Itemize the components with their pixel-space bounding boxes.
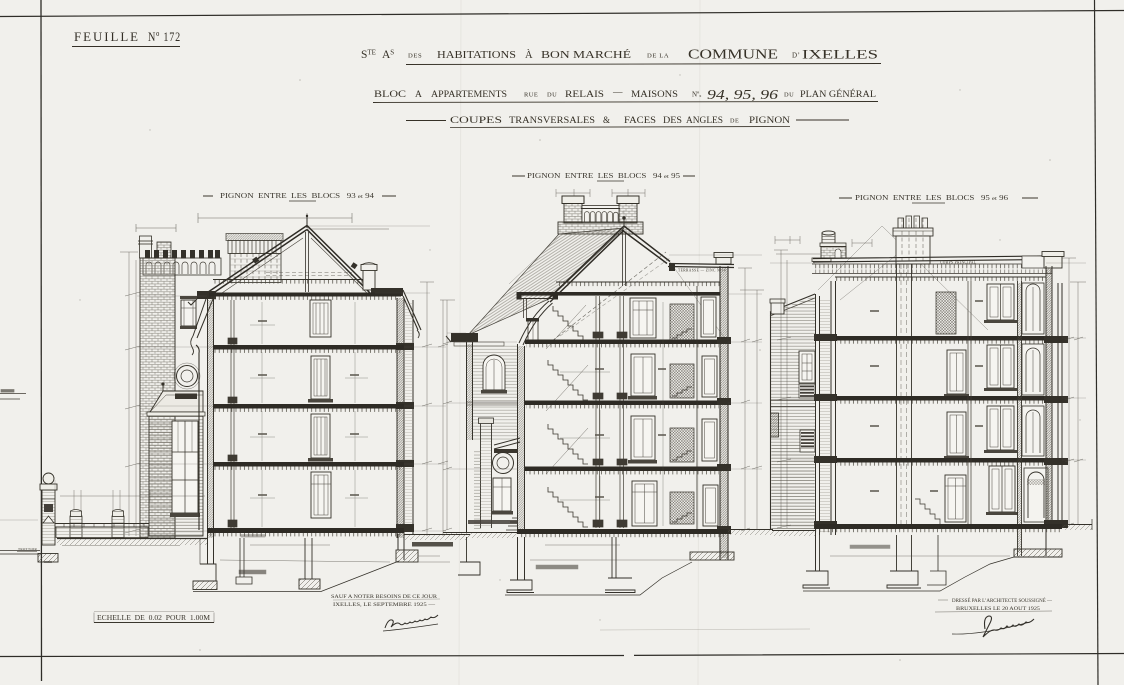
- svg-text:ANGLES: ANGLES: [686, 115, 723, 125]
- svg-text:RUE: RUE: [524, 92, 538, 99]
- svg-text:DE LA: DE LA: [647, 53, 669, 60]
- svg-text:PIGNON: PIGNON: [749, 115, 791, 125]
- svg-text:PLAN GÉNÉRAL: PLAN GÉNÉRAL: [800, 88, 876, 100]
- svg-text:ECHELLE DE 0.02 POUR 1.00M: ECHELLE DE 0.02 POUR 1.00M: [97, 615, 210, 622]
- svg-text:DU: DU: [784, 92, 794, 99]
- svg-text:BLOC: BLOC: [374, 90, 406, 100]
- svg-text:DES: DES: [408, 53, 422, 60]
- svg-text:IXELLES, LE SEPTEMBRE 1925 —: IXELLES, LE SEPTEMBRE 1925 —: [333, 602, 436, 608]
- svg-text:D’: D’: [792, 52, 800, 60]
- svg-text:HABITATIONS: HABITATIONS: [437, 50, 516, 61]
- svg-text:Nºₓ: Nºₓ: [692, 91, 702, 99]
- svg-text:PIGNON ENTRE LES BLOCS 93: PIGNON ENTRE LES BLOCS 93 et 94: [220, 192, 375, 200]
- svg-text:APPARTEMENTS: APPARTEMENTS: [431, 90, 507, 100]
- svg-text:IXELLES: IXELLES: [802, 47, 878, 62]
- svg-text:DU: DU: [547, 92, 557, 99]
- svg-text:DE: DE: [730, 118, 739, 125]
- svg-text:&: &: [603, 115, 610, 125]
- svg-text:À: À: [525, 49, 533, 61]
- svg-text:PIGNON ENTRE LES BLOCS 94: PIGNON ENTRE LES BLOCS 94 et 95: [527, 172, 680, 180]
- svg-text:DRESSÉ PAR L’ARCHITECTE SOUSSI: DRESSÉ PAR L’ARCHITECTE SOUSSIGNÉ —: [952, 598, 1053, 604]
- svg-text:A: A: [415, 90, 422, 100]
- svg-text:TERRASSE — ZINC Nº14: TERRASSE — ZINC Nº14: [678, 269, 726, 273]
- svg-text:FACES: FACES: [624, 115, 656, 125]
- svg-text:Nº 172: Nº 172: [148, 29, 181, 44]
- svg-text:BON MARCHÉ: BON MARCHÉ: [541, 49, 631, 61]
- svg-text:94, 95, 96: 94, 95, 96: [707, 87, 778, 102]
- svg-text:MAISONS: MAISONS: [631, 90, 678, 100]
- svg-text:PIGNON ENTRE LES BLOCS 95: PIGNON ENTRE LES BLOCS 95 et 96: [855, 194, 1008, 202]
- svg-text:DES: DES: [663, 115, 682, 125]
- svg-text:RELAIS: RELAIS: [565, 90, 604, 100]
- svg-text:FEUILLE: FEUILLE: [74, 29, 140, 44]
- svg-text:COUPES: COUPES: [450, 115, 502, 125]
- svg-text:COMMUNE: COMMUNE: [688, 48, 778, 63]
- svg-text:—: —: [612, 88, 623, 98]
- svg-text:TRANSVERSALES: TRANSVERSALES: [509, 115, 595, 125]
